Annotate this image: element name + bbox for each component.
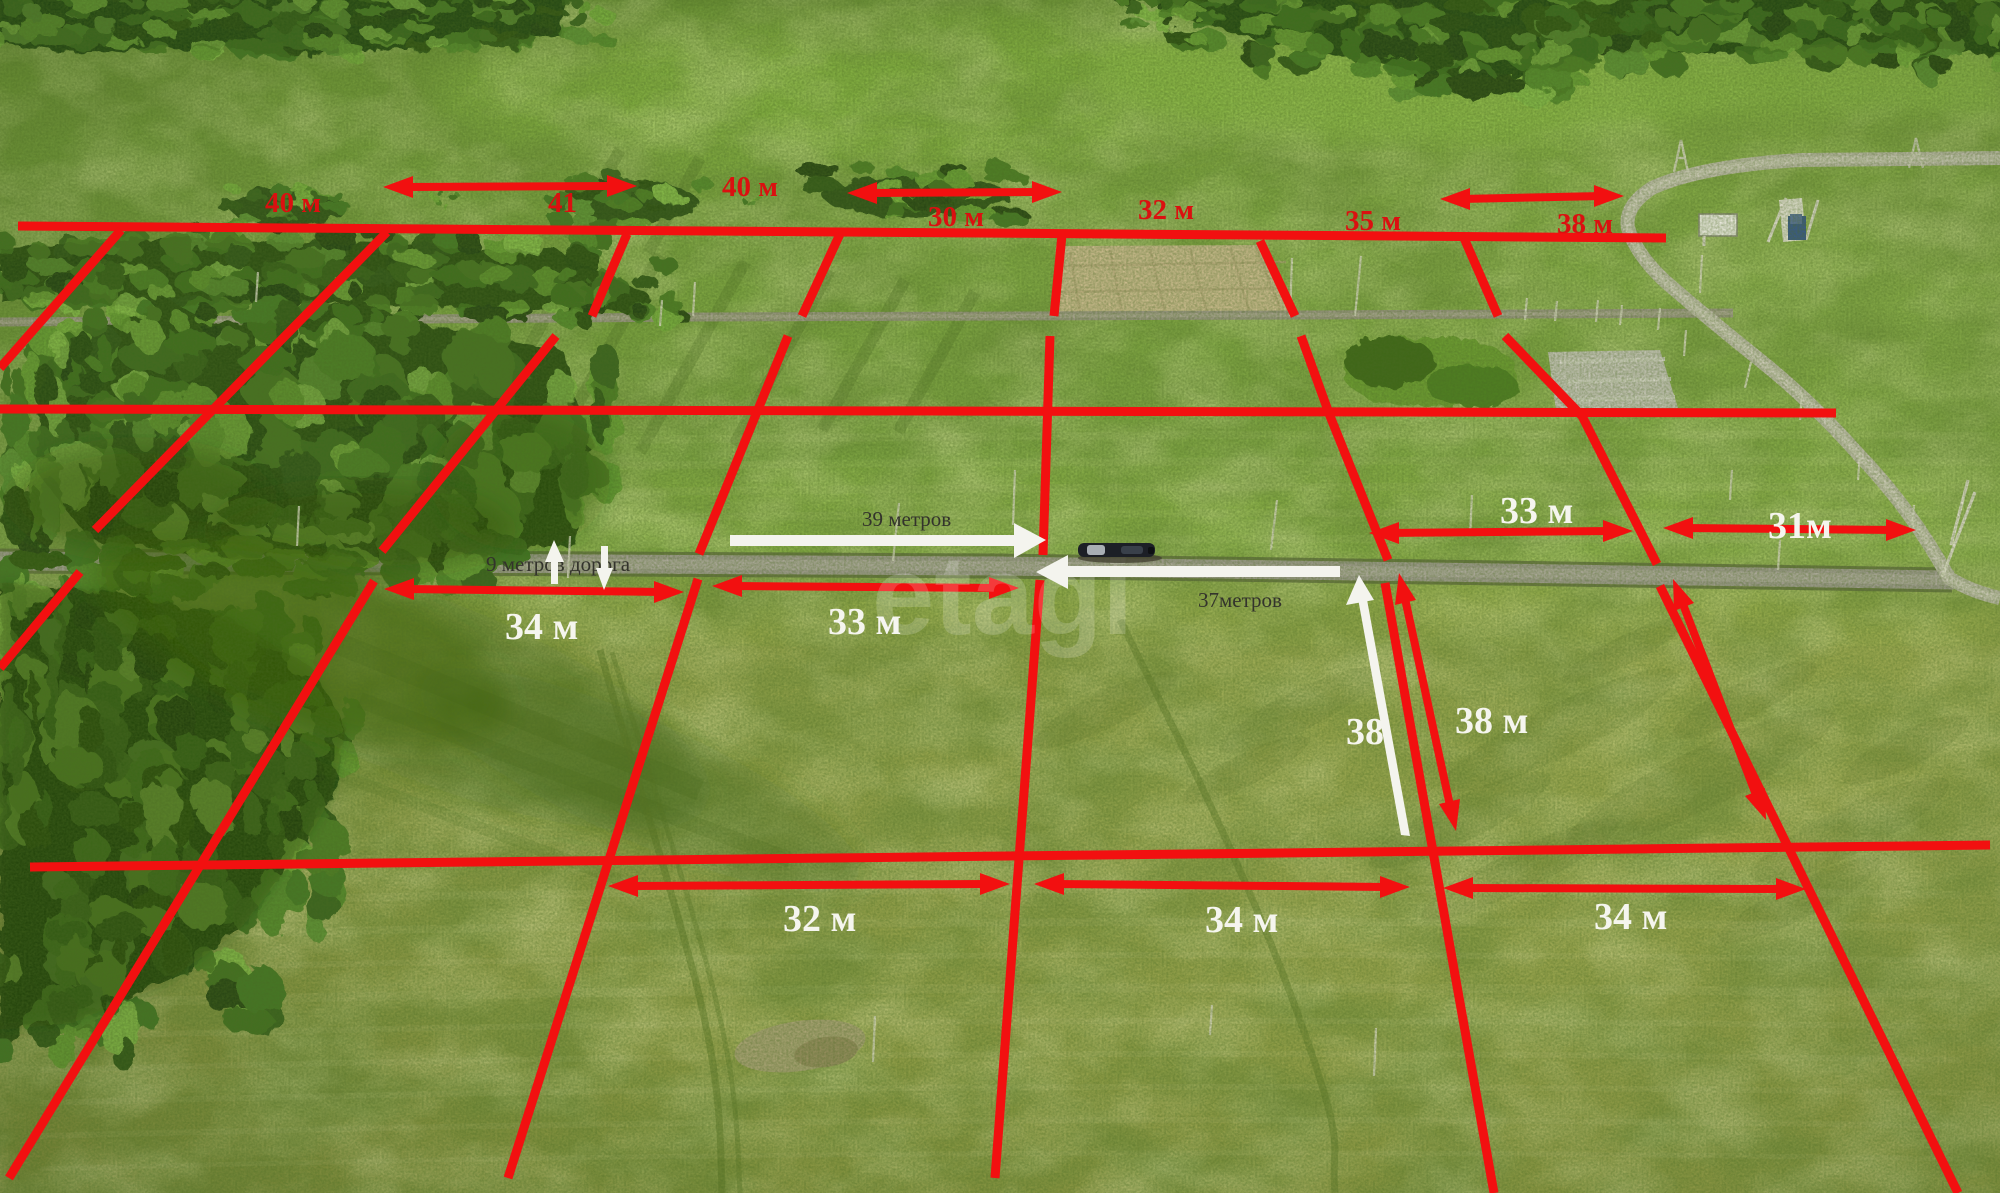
svg-text:39 метров: 39 метров [862, 507, 951, 531]
svg-text:38 м: 38 м [1455, 700, 1528, 742]
svg-text:38: 38 [1346, 711, 1384, 753]
svg-text:40 м: 40 м [265, 187, 321, 219]
svg-text:37метров: 37метров [1198, 588, 1282, 612]
svg-text:34 м: 34 м [1594, 896, 1667, 938]
svg-text:32 м: 32 м [1138, 194, 1194, 226]
svg-text:31м: 31м [1768, 505, 1832, 547]
svg-text:32 м: 32 м [783, 898, 856, 940]
svg-text:41: 41 [548, 187, 577, 219]
svg-text:30 м: 30 м [928, 201, 984, 233]
svg-text:33 м: 33 м [1500, 490, 1573, 532]
svg-text:34 м: 34 м [1205, 899, 1278, 941]
svg-text:35 м: 35 м [1345, 205, 1401, 237]
svg-text:40 м: 40 м [722, 171, 778, 203]
svg-text:38 м: 38 м [1557, 208, 1613, 240]
svg-text:34 м: 34 м [505, 606, 578, 648]
